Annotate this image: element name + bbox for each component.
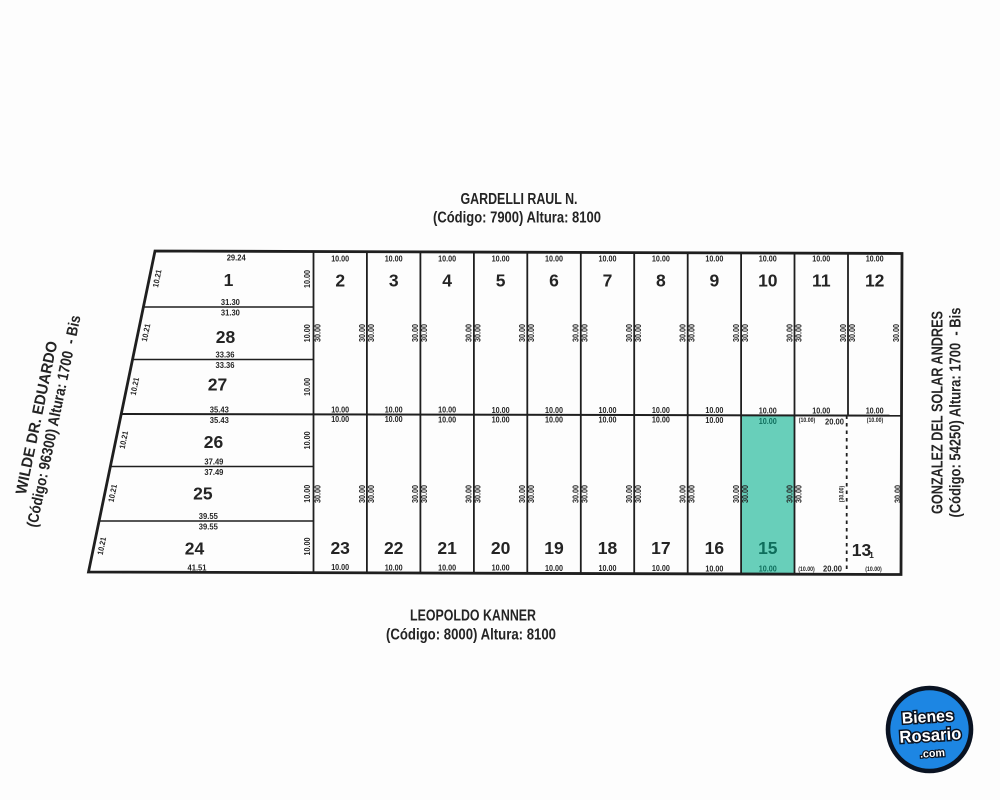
svg-text:4: 4 (442, 271, 452, 291)
svg-text:GONZALEZ DEL SOLAR ANDRES: GONZALEZ DEL SOLAR ANDRES (930, 311, 947, 514)
svg-text:30.00: 30.00 (625, 485, 634, 503)
svg-text:30.00: 30.00 (358, 324, 367, 342)
svg-text:10.00: 10.00 (705, 564, 723, 573)
svg-text:10.00: 10.00 (705, 416, 723, 425)
svg-text:(10.00): (10.00) (865, 567, 882, 573)
svg-text:10.00: 10.00 (759, 565, 777, 574)
svg-text:30.00: 30.00 (741, 324, 750, 342)
svg-text:10.00: 10.00 (545, 416, 563, 425)
svg-text:30.00: 30.00 (634, 485, 643, 503)
svg-text:10.00: 10.00 (812, 406, 830, 415)
svg-text:12: 12 (865, 271, 885, 291)
svg-text:30.00: 30.00 (785, 324, 794, 342)
svg-text:30.00: 30.00 (634, 324, 643, 342)
svg-text:10.00: 10.00 (331, 415, 349, 424)
svg-text:30.00: 30.00 (474, 485, 483, 503)
svg-text:16: 16 (705, 538, 725, 558)
svg-text:10.00: 10.00 (438, 415, 456, 424)
svg-text:10.00: 10.00 (303, 324, 312, 342)
svg-text:(10.00): (10.00) (799, 418, 816, 424)
svg-text:10.00: 10.00 (438, 564, 456, 573)
svg-text:18: 18 (598, 538, 618, 558)
svg-text:30.00: 30.00 (518, 324, 527, 342)
svg-text:30.00: 30.00 (411, 485, 420, 503)
svg-text:37.49: 37.49 (204, 468, 224, 477)
svg-text:10.00: 10.00 (652, 416, 670, 425)
svg-text:30.00: 30.00 (420, 485, 429, 503)
svg-text:33.36: 33.36 (216, 361, 236, 370)
svg-text:10.00: 10.00 (866, 407, 884, 416)
svg-text:41.51: 41.51 (188, 564, 208, 573)
svg-text:10: 10 (758, 271, 778, 291)
svg-text:30.00: 30.00 (839, 324, 848, 342)
svg-text:LEOPOLDO KANNER: LEOPOLDO KANNER (410, 608, 536, 625)
svg-text:10.00: 10.00 (385, 563, 403, 572)
svg-text:35.43: 35.43 (210, 405, 230, 414)
svg-text:10.00: 10.00 (759, 255, 777, 264)
svg-text:1: 1 (869, 550, 874, 560)
svg-text:30.00: 30.00 (794, 485, 803, 503)
svg-text:9: 9 (710, 271, 720, 291)
svg-text:10.00: 10.00 (303, 377, 312, 395)
svg-text:2: 2 (335, 271, 345, 291)
svg-text:10.00: 10.00 (705, 255, 723, 264)
svg-text:10.00: 10.00 (759, 406, 777, 415)
svg-text:30.00: 30.00 (732, 324, 741, 342)
svg-text:30.00: 30.00 (474, 324, 483, 342)
svg-text:39.55: 39.55 (199, 512, 219, 521)
svg-text:35.43: 35.43 (210, 416, 230, 425)
svg-text:30.00: 30.00 (518, 485, 527, 503)
svg-text:30.00: 30.00 (688, 485, 697, 503)
svg-text:10.00: 10.00 (599, 416, 617, 425)
svg-text:23: 23 (330, 538, 350, 558)
svg-text:1: 1 (224, 270, 234, 290)
svg-text:30.00: 30.00 (893, 485, 902, 503)
svg-text:10.00: 10.00 (652, 406, 670, 415)
svg-text:30.00: 30.00 (527, 324, 536, 342)
svg-text:10.00: 10.00 (599, 255, 617, 264)
svg-text:GARDELLI RAUL N.: GARDELLI RAUL N. (461, 191, 578, 208)
svg-text:10.00: 10.00 (385, 406, 403, 415)
svg-text:10.00: 10.00 (812, 255, 830, 264)
svg-text:10.00: 10.00 (545, 564, 563, 573)
svg-text:30.00: 30.00 (892, 324, 901, 342)
svg-text:10.00: 10.00 (705, 406, 723, 415)
svg-text:24: 24 (185, 539, 205, 559)
svg-text:27: 27 (208, 375, 227, 395)
svg-text:5: 5 (496, 271, 506, 291)
svg-text:10.00: 10.00 (303, 484, 312, 502)
svg-text:30.00: 30.00 (581, 485, 590, 503)
svg-text:20: 20 (491, 538, 511, 558)
svg-text:37.49: 37.49 (204, 458, 224, 467)
svg-text:10.00: 10.00 (303, 270, 312, 288)
svg-text:(10.00): (10.00) (867, 418, 884, 424)
svg-text:30.00: 30.00 (572, 485, 581, 503)
svg-text:29.24: 29.24 (227, 254, 247, 263)
svg-text:31.30: 31.30 (221, 309, 241, 318)
svg-text:30.00: 30.00 (465, 324, 474, 342)
svg-text:30.00: 30.00 (367, 485, 376, 503)
svg-text:30.00: 30.00 (679, 485, 688, 503)
svg-text:30.00: 30.00 (741, 485, 750, 503)
svg-text:10.00: 10.00 (759, 417, 777, 426)
svg-text:10.00: 10.00 (303, 431, 312, 449)
svg-text:10.00: 10.00 (652, 564, 670, 573)
svg-text:10.00: 10.00 (866, 255, 884, 264)
svg-text:(30.00): (30.00) (840, 486, 846, 503)
svg-text:33.36: 33.36 (216, 351, 236, 360)
svg-text:10.00: 10.00 (492, 406, 510, 415)
svg-text:10.00: 10.00 (492, 255, 510, 264)
svg-text:30.00: 30.00 (572, 324, 581, 342)
svg-text:20.00: 20.00 (825, 418, 845, 427)
svg-text:10.00: 10.00 (599, 406, 617, 415)
svg-text:10.00: 10.00 (385, 255, 403, 264)
svg-text:.com: .com (920, 747, 946, 761)
svg-text:30.00: 30.00 (465, 485, 474, 503)
svg-text:30.00: 30.00 (313, 324, 322, 342)
svg-text:30.00: 30.00 (313, 485, 322, 503)
svg-text:20.00: 20.00 (823, 564, 843, 573)
svg-text:30.00: 30.00 (420, 324, 429, 342)
svg-text:(Código: 54250) Altura: 1700: (Código: 54250) Altura: 1700 - Bis (948, 308, 965, 518)
svg-text:30.00: 30.00 (367, 324, 376, 342)
svg-text:10.00: 10.00 (385, 415, 403, 424)
svg-text:30.00: 30.00 (785, 485, 794, 503)
svg-text:30.00: 30.00 (358, 485, 367, 503)
svg-text:8: 8 (656, 271, 666, 291)
svg-text:30.00: 30.00 (527, 485, 536, 503)
svg-text:10.00: 10.00 (545, 406, 563, 415)
svg-text:6: 6 (549, 271, 559, 291)
svg-text:7: 7 (603, 271, 613, 291)
svg-text:31.30: 31.30 (221, 298, 241, 307)
svg-text:Rosario: Rosario (899, 724, 962, 747)
svg-text:10.00: 10.00 (599, 564, 617, 573)
svg-text:10.00: 10.00 (331, 255, 349, 264)
svg-text:(Código: 7900) Altura: 8100: (Código: 7900) Altura: 8100 (433, 210, 601, 227)
svg-text:10.00: 10.00 (331, 563, 349, 572)
svg-text:30.00: 30.00 (581, 324, 590, 342)
svg-text:30.00: 30.00 (411, 324, 420, 342)
svg-text:30.00: 30.00 (688, 324, 697, 342)
svg-text:19: 19 (544, 538, 564, 558)
svg-text:(10.00): (10.00) (798, 567, 815, 573)
svg-text:25: 25 (193, 483, 213, 503)
svg-text:26: 26 (204, 432, 224, 452)
svg-text:10.00: 10.00 (545, 255, 563, 264)
svg-text:10.00: 10.00 (438, 255, 456, 264)
svg-text:3: 3 (389, 271, 399, 291)
svg-text:30.00: 30.00 (732, 485, 741, 503)
svg-text:30.00: 30.00 (794, 324, 803, 342)
svg-text:28: 28 (216, 327, 236, 347)
svg-text:39.55: 39.55 (199, 523, 219, 532)
svg-text:10.00: 10.00 (492, 564, 510, 573)
svg-text:30.00: 30.00 (679, 324, 688, 342)
svg-text:10.00: 10.00 (492, 415, 510, 424)
svg-text:10.00: 10.00 (331, 405, 349, 414)
svg-text:10.00: 10.00 (652, 255, 670, 264)
svg-text:15: 15 (758, 538, 778, 558)
svg-text:10.00: 10.00 (438, 406, 456, 415)
svg-text:21: 21 (437, 538, 457, 558)
svg-text:30.00: 30.00 (848, 324, 857, 342)
svg-text:17: 17 (651, 538, 670, 558)
svg-text:10.00: 10.00 (303, 537, 312, 555)
svg-text:(Código: 8000) Altura: 8100: (Código: 8000) Altura: 8100 (386, 626, 556, 643)
svg-text:11: 11 (812, 271, 831, 291)
svg-text:22: 22 (384, 538, 404, 558)
svg-text:30.00: 30.00 (625, 324, 634, 342)
